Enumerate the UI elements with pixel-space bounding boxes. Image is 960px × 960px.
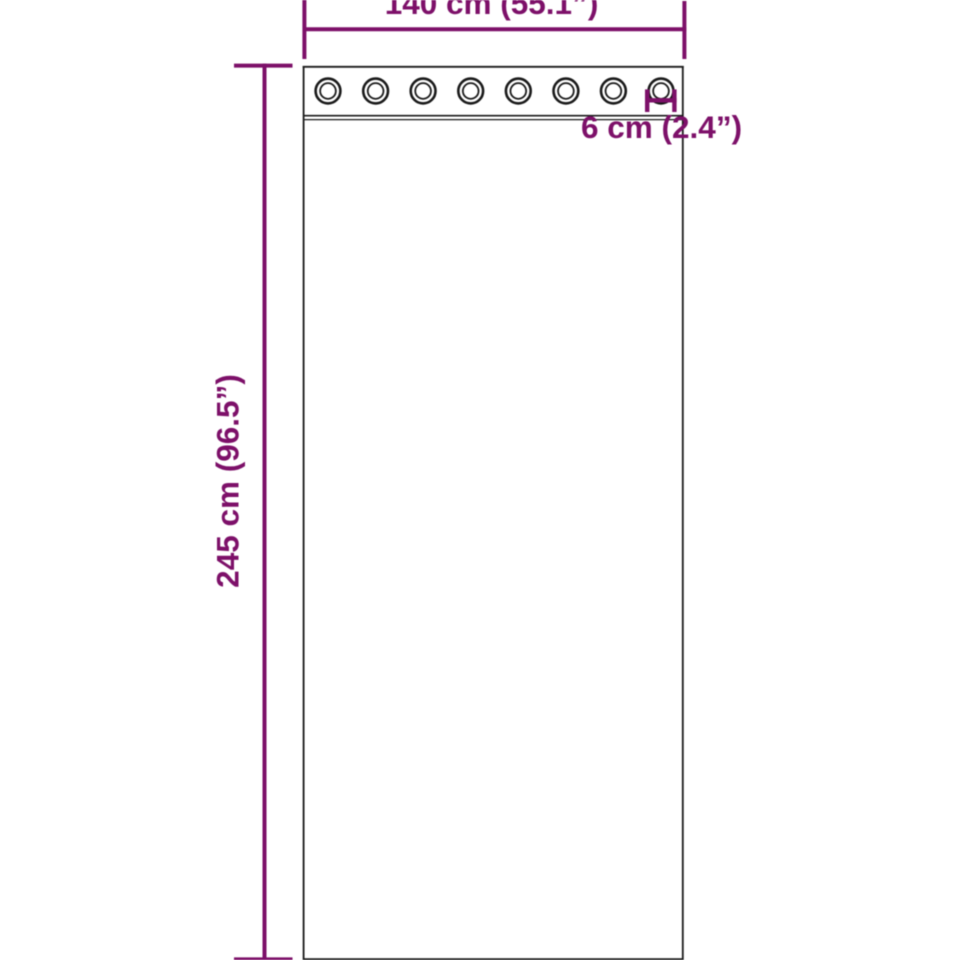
svg-text:6 cm (2.4”): 6 cm (2.4”) xyxy=(581,109,742,145)
svg-text:245 cm (96.5”): 245 cm (96.5”) xyxy=(210,374,246,588)
svg-text:140 cm (55.1”): 140 cm (55.1”) xyxy=(385,0,599,21)
